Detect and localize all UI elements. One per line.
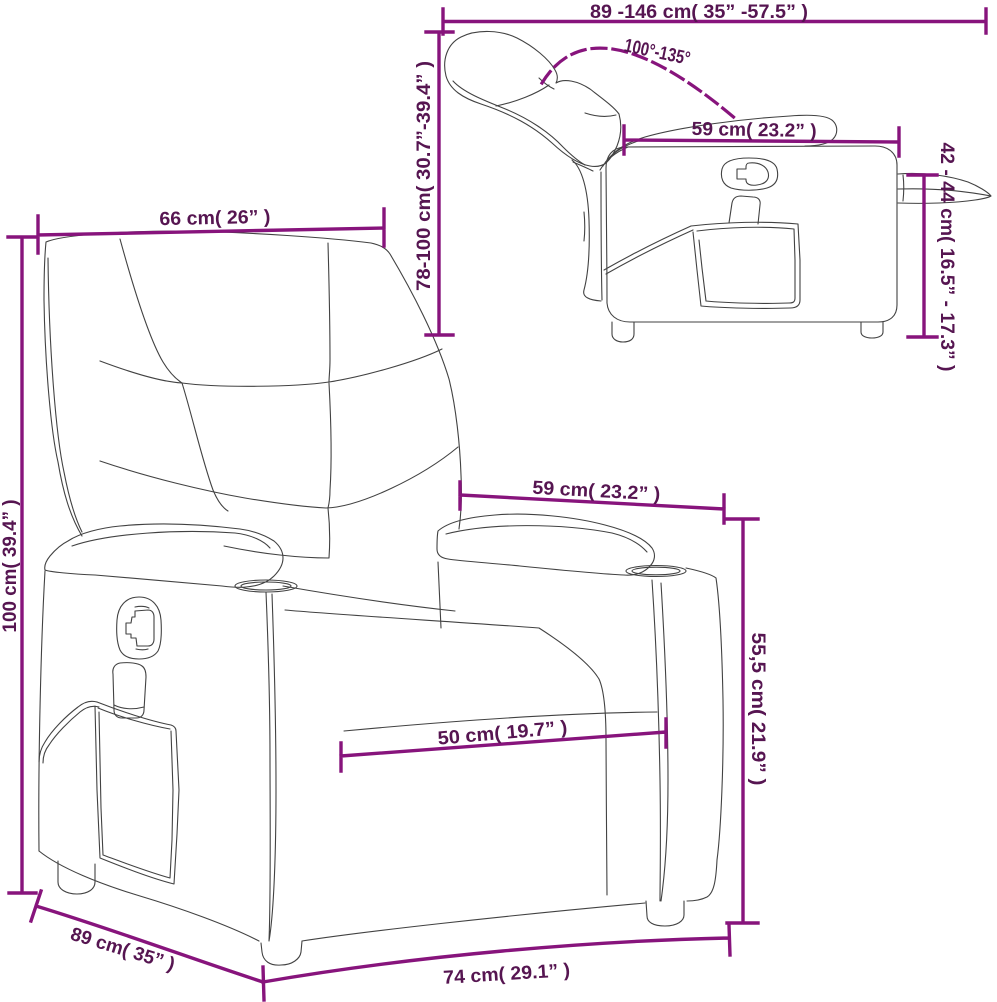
svg-text:78-100 cm( 30.7”-39.4” ): 78-100 cm( 30.7”-39.4” ) [414,61,435,291]
svg-text:55,5 cm( 21.9” ): 55,5 cm( 21.9” ) [747,633,768,786]
svg-text:42 - 44 cm( 16.5” - 17.3” ): 42 - 44 cm( 16.5” - 17.3” ) [936,143,957,372]
svg-text:66 cm( 26” ): 66 cm( 26” ) [159,207,270,230]
svg-text:59 cm( 23.2” ): 59 cm( 23.2” ) [691,119,816,142]
svg-text:100 cm( 39.4” ): 100 cm( 39.4” ) [0,500,21,633]
svg-text:89 -146 cm( 35” -57.5” ): 89 -146 cm( 35” -57.5” ) [590,2,808,23]
